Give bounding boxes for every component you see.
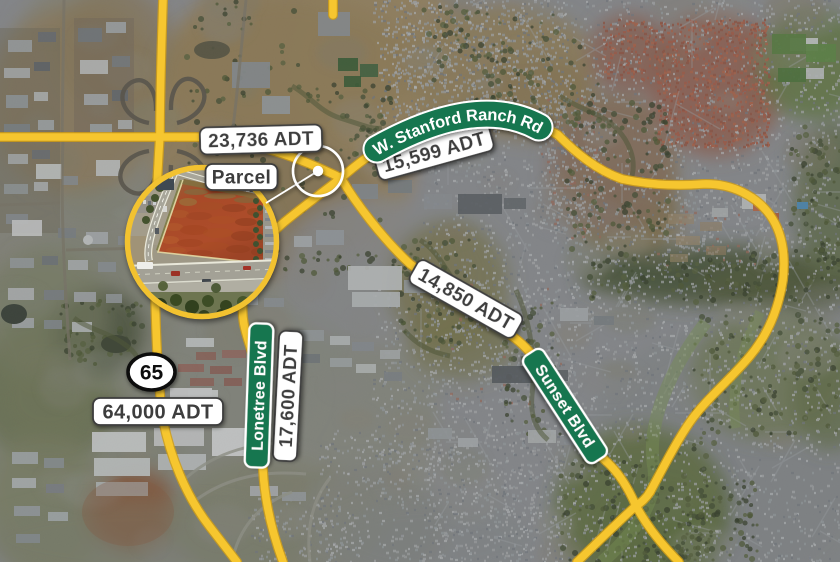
svg-text:23,736 ADT: 23,736 ADT — [208, 129, 314, 153]
svg-text:65: 65 — [140, 362, 164, 385]
svg-text:64,000 ADT: 64,000 ADT — [102, 402, 213, 424]
svg-text:Parcel: Parcel — [212, 168, 271, 189]
